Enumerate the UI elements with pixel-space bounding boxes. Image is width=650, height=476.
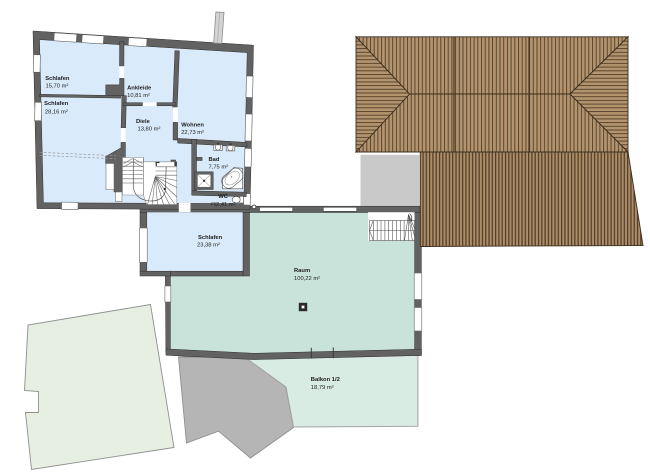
svg-text:Balkon 1/2: Balkon 1/2 — [311, 377, 340, 383]
svg-text:22,73 m²: 22,73 m² — [181, 130, 204, 136]
svg-text:7,75 m²: 7,75 m² — [209, 165, 229, 171]
svg-text:Diele: Diele — [136, 119, 151, 125]
svg-text:Schlafen: Schlafen — [45, 76, 70, 82]
svg-text:2,41 m²: 2,41 m² — [216, 202, 236, 208]
svg-text:WC: WC — [218, 194, 228, 200]
svg-text:Schlafen: Schlafen — [44, 101, 69, 107]
svg-text:Schlafen: Schlafen — [198, 235, 223, 241]
svg-text:28,16 m²: 28,16 m² — [45, 109, 68, 115]
svg-text:Ankleide: Ankleide — [127, 85, 152, 91]
svg-text:10,81 m²: 10,81 m² — [127, 93, 150, 99]
svg-text:23,38 m²: 23,38 m² — [197, 243, 220, 249]
svg-text:Wohnen: Wohnen — [181, 123, 204, 129]
svg-text:18,79 m²: 18,79 m² — [311, 385, 334, 391]
svg-text:100,22 m²: 100,22 m² — [294, 276, 320, 282]
svg-text:13,80 m²: 13,80 m² — [138, 126, 161, 132]
svg-text:Bad: Bad — [209, 157, 220, 163]
svg-text:15,70 m²: 15,70 m² — [46, 84, 69, 90]
svg-text:Raum: Raum — [294, 268, 310, 274]
